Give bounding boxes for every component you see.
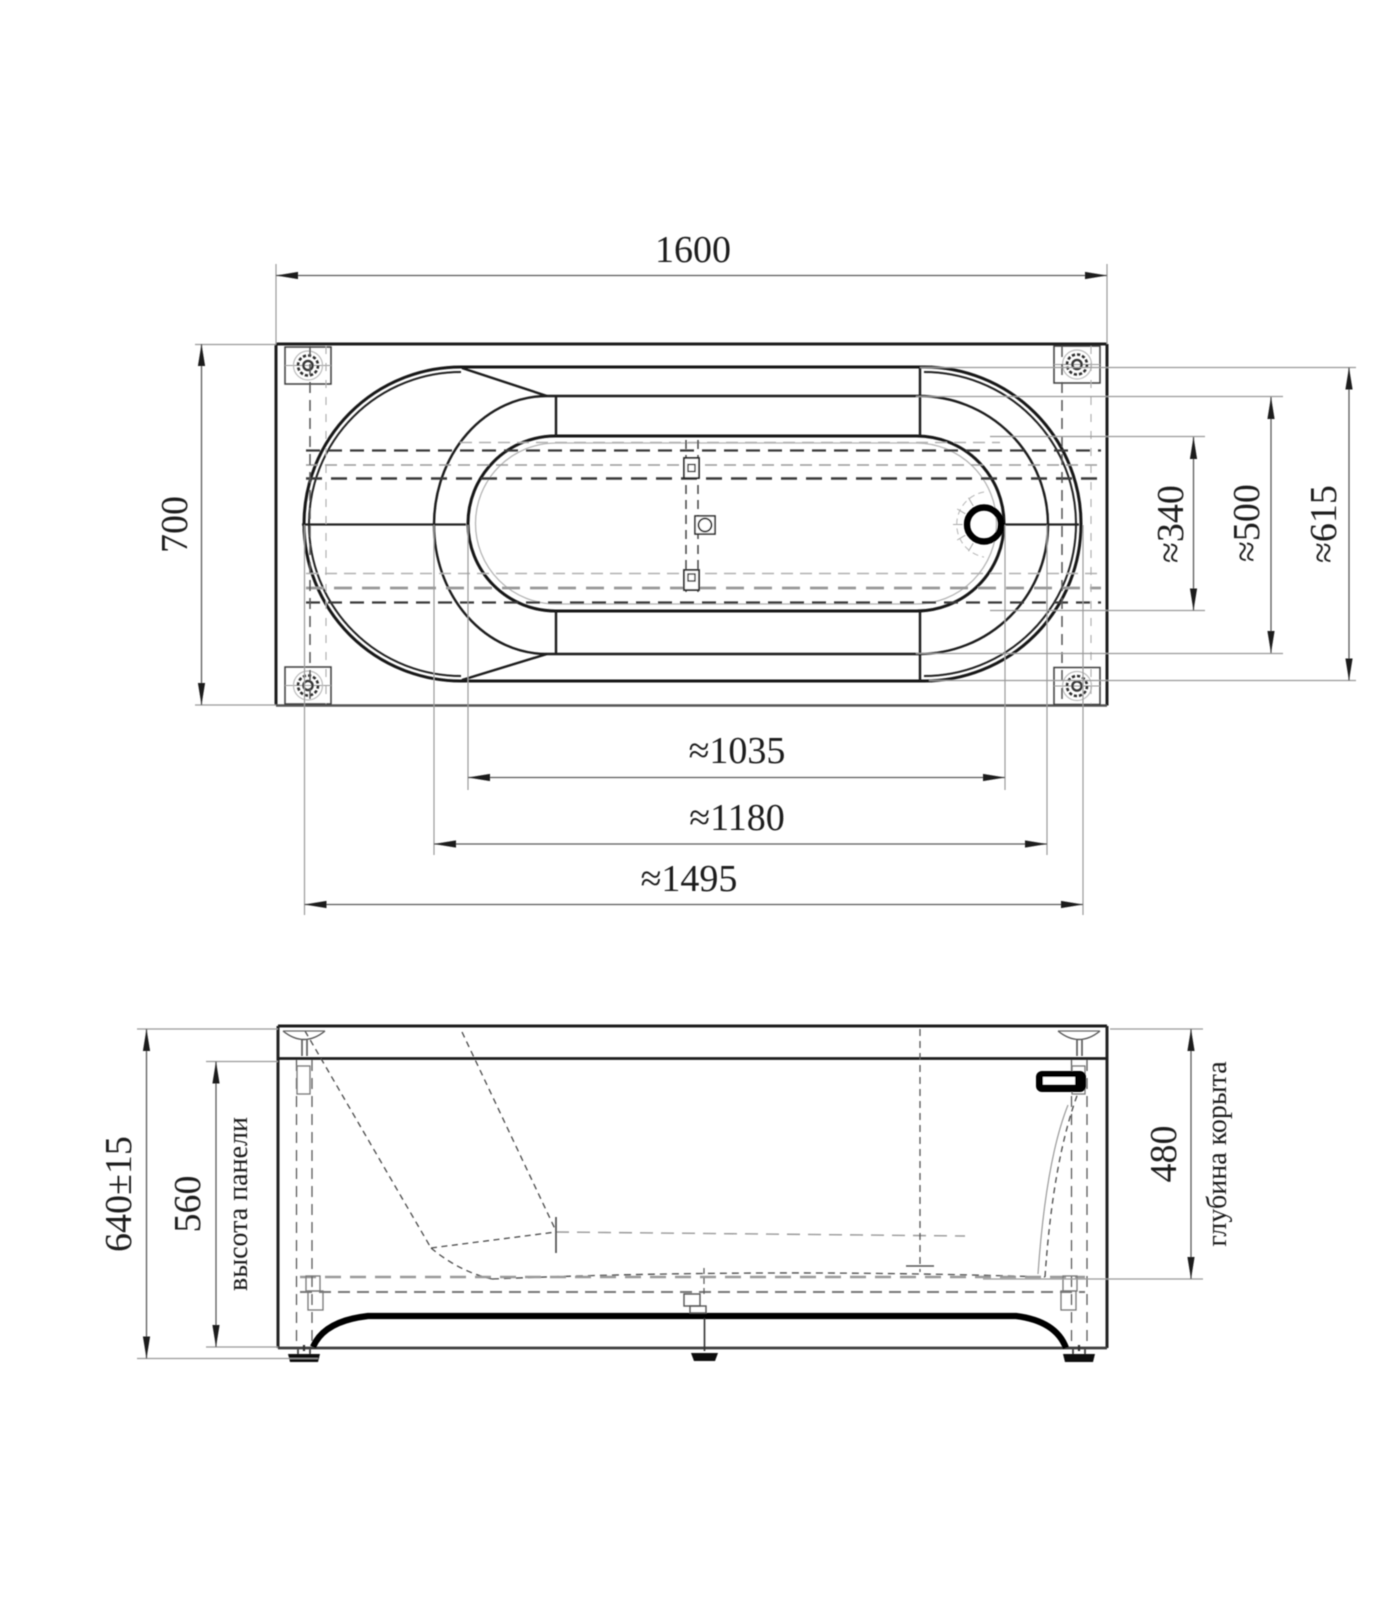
svg-text:≈1035: ≈1035 (689, 730, 786, 772)
svg-text:560: 560 (167, 1176, 209, 1233)
svg-text:глубина корыта: глубина корыта (1202, 1061, 1233, 1247)
svg-text:700: 700 (154, 496, 196, 553)
svg-text:1600: 1600 (655, 229, 731, 271)
svg-text:≈1495: ≈1495 (641, 858, 738, 900)
svg-text:≈500: ≈500 (1226, 484, 1268, 562)
svg-text:≈1180: ≈1180 (689, 797, 784, 839)
svg-text:≈340: ≈340 (1150, 485, 1192, 563)
svg-text:480: 480 (1143, 1126, 1185, 1183)
svg-text:≈615: ≈615 (1303, 485, 1345, 563)
svg-text:640±15: 640±15 (98, 1136, 140, 1252)
svg-text:высота панели: высота панели (223, 1117, 254, 1291)
